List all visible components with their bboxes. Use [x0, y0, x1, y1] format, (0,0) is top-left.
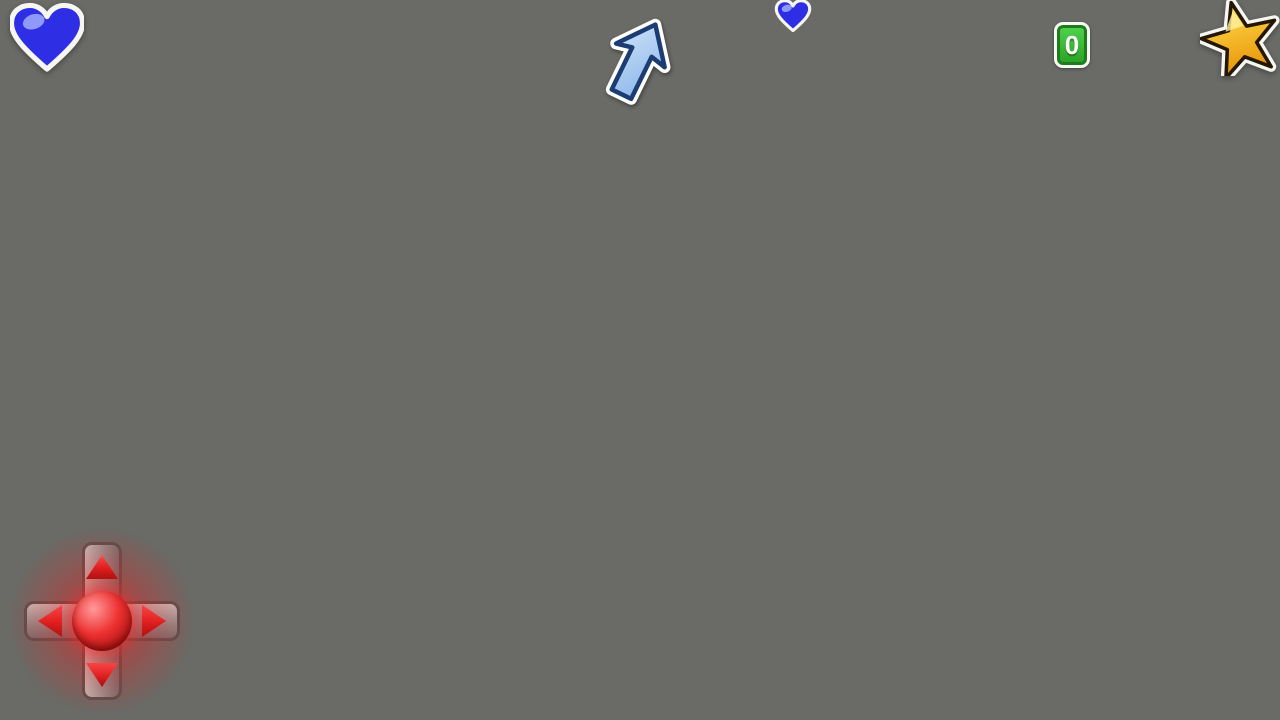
heart-icon — [10, 2, 84, 74]
star-icon — [1200, 0, 1280, 76]
score-counter-value: 0 — [1065, 30, 1079, 61]
arrow-cursor-icon — [602, 18, 674, 106]
score-counter: 0 — [1054, 22, 1090, 68]
achievement-star-icon[interactable] — [1200, 0, 1280, 76]
hp-heart-icon[interactable] — [10, 2, 84, 74]
map-base — [0, 0, 1280, 720]
dpad-joystick-ball[interactable] — [72, 591, 132, 651]
dpad-control[interactable] — [24, 542, 180, 700]
heart-icon — [774, 0, 812, 32]
npc-emote-heart-icon — [774, 0, 812, 32]
game-stage[interactable]: 0 — [0, 0, 1280, 720]
quest-cursor-icon — [602, 18, 674, 106]
